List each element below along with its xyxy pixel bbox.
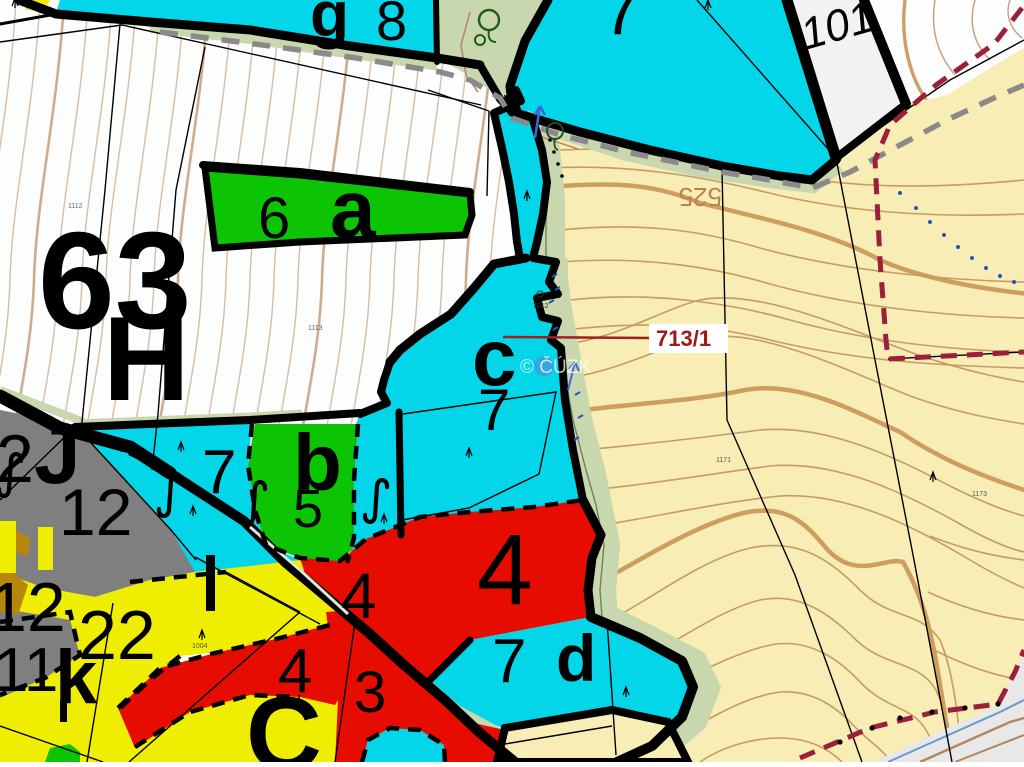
- svg-text:7: 7: [602, 0, 641, 49]
- svg-text:713/1: 713/1: [656, 326, 711, 351]
- svg-text:12: 12: [59, 475, 132, 549]
- svg-text:g: g: [310, 0, 349, 50]
- svg-text:8: 8: [376, 0, 407, 52]
- svg-text:4: 4: [477, 514, 533, 626]
- svg-text:a: a: [330, 164, 377, 255]
- svg-text:H: H: [103, 292, 190, 426]
- svg-text:C: C: [246, 676, 322, 762]
- svg-text:1112: 1112: [68, 203, 83, 210]
- svg-text:2: 2: [0, 421, 34, 497]
- svg-text:7: 7: [492, 627, 526, 696]
- svg-text:3: 3: [354, 660, 386, 725]
- svg-text:525: 525: [679, 182, 722, 212]
- svg-text:1113: 1113: [308, 325, 323, 332]
- svg-text:1171: 1171: [716, 457, 731, 464]
- svg-text:d: d: [556, 621, 596, 695]
- svg-text:6: 6: [258, 186, 290, 251]
- svg-text:7: 7: [202, 438, 236, 507]
- svg-text:11: 11: [0, 636, 58, 705]
- svg-text:1173: 1173: [972, 491, 987, 498]
- svg-text:7012: 7012: [533, 303, 549, 310]
- svg-text:© ČÚZK: © ČÚZK: [520, 356, 591, 378]
- svg-text:4: 4: [341, 560, 377, 632]
- svg-text:1004: 1004: [192, 643, 208, 650]
- svg-text:7: 7: [478, 378, 510, 443]
- svg-text:5: 5: [293, 479, 323, 539]
